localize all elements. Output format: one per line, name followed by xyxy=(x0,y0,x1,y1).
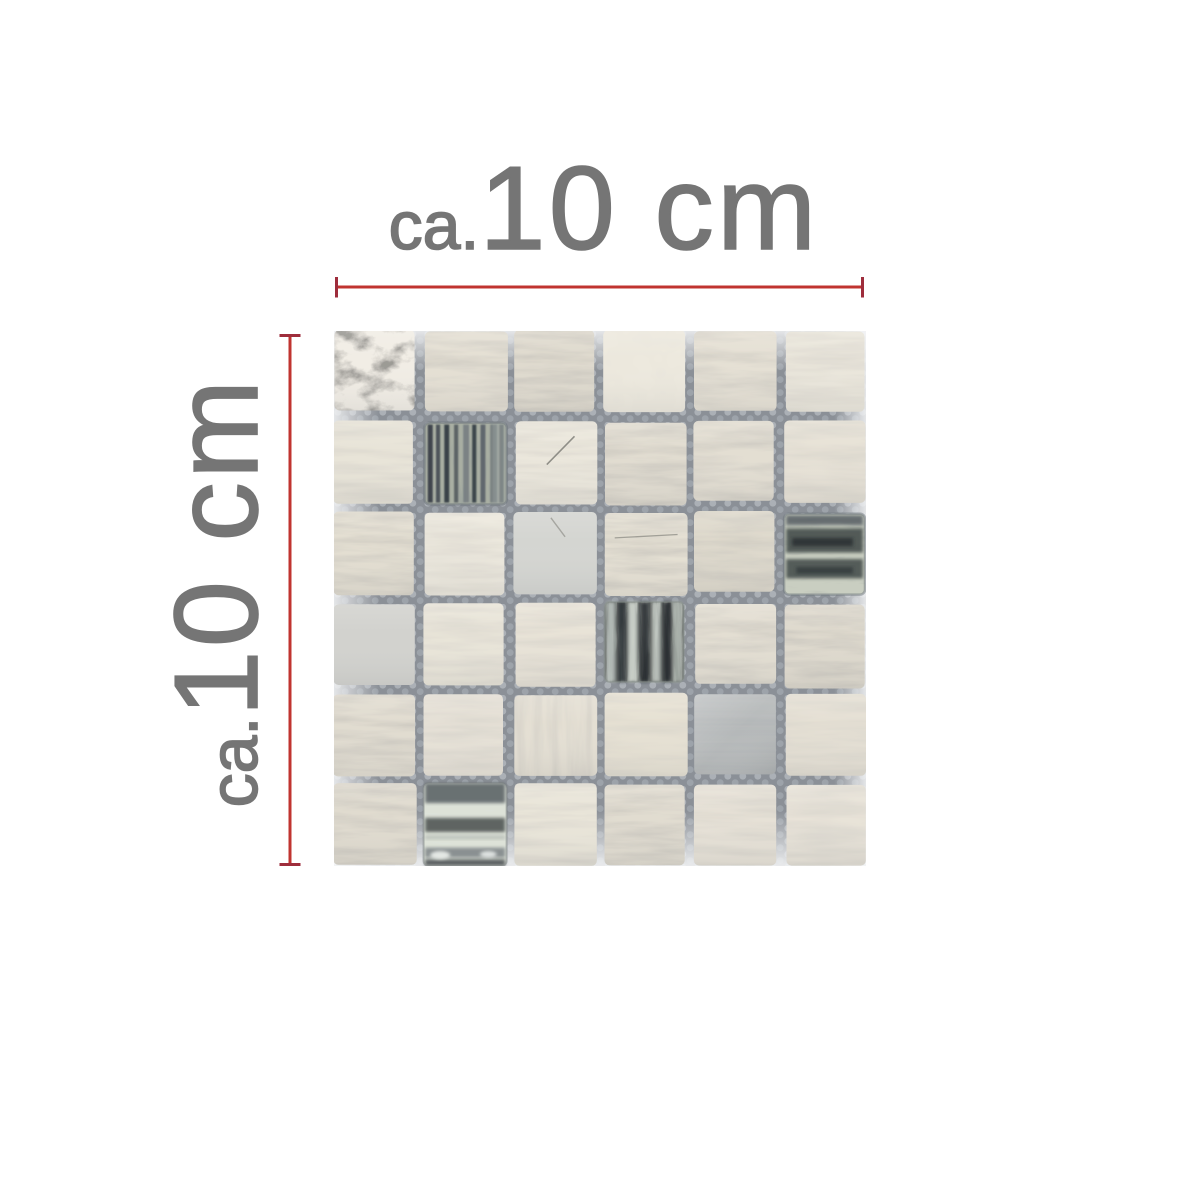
svg-text:ca.10 cm: ca.10 cm xyxy=(389,142,820,275)
svg-text:ca.10 cm: ca.10 cm xyxy=(150,377,283,808)
